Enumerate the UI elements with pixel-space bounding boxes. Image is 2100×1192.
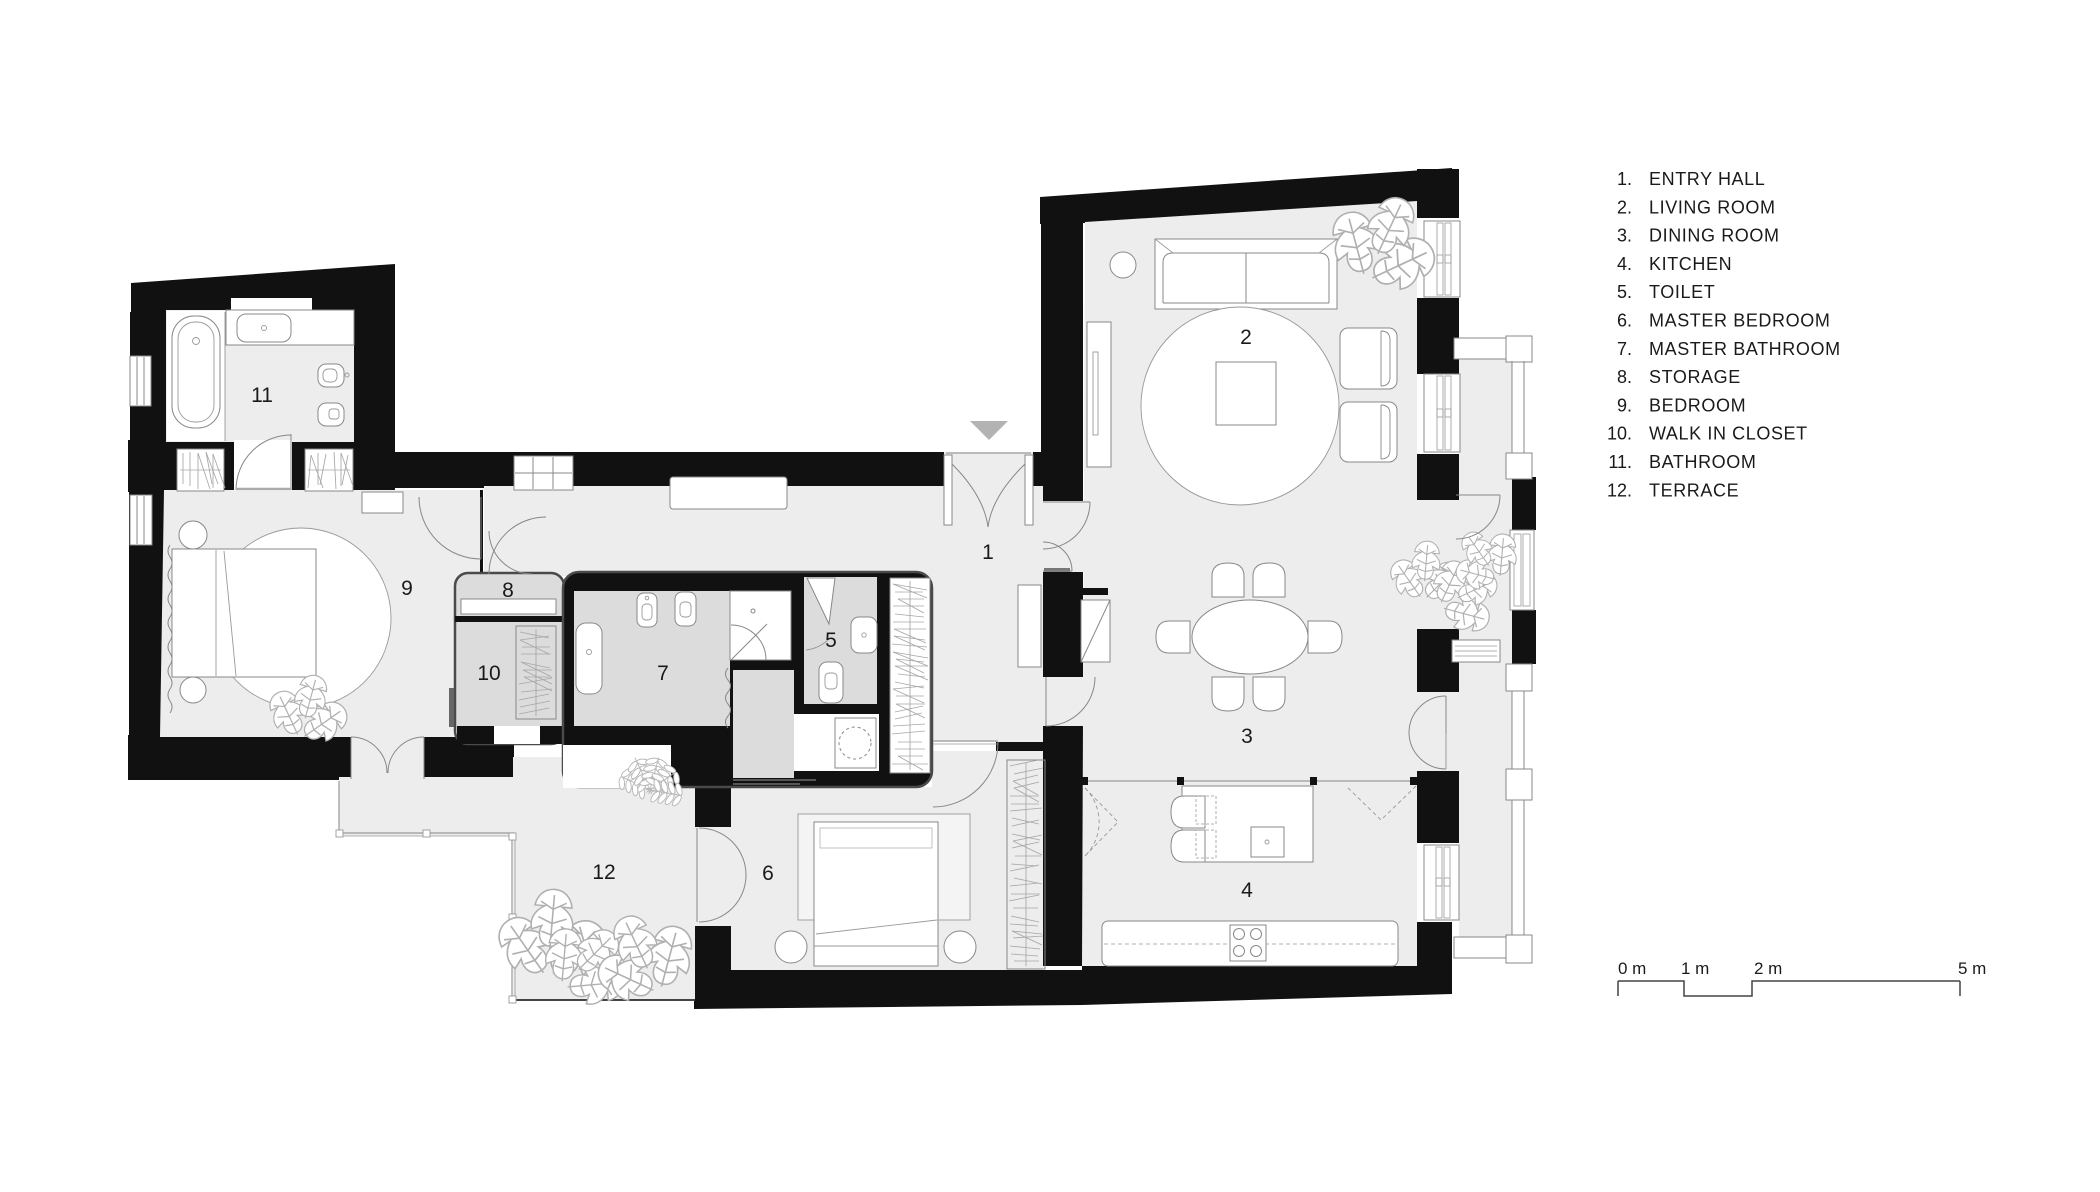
svg-text:11: 11 [251, 384, 273, 407]
svg-text:12: 12 [592, 861, 615, 884]
svg-text:6.: 6. [1617, 311, 1632, 331]
svg-text:2.: 2. [1617, 197, 1632, 217]
svg-text:2: 2 [1240, 326, 1252, 349]
svg-text:LIVING ROOM: LIVING ROOM [1649, 197, 1776, 217]
svg-text:BATHROOM: BATHROOM [1649, 452, 1756, 472]
svg-text:8: 8 [502, 579, 514, 602]
svg-text:3: 3 [1241, 725, 1253, 748]
svg-text:KITCHEN: KITCHEN [1649, 254, 1732, 274]
svg-text:5.: 5. [1617, 282, 1632, 302]
svg-text:0 m: 0 m [1618, 959, 1646, 978]
svg-text:1: 1 [982, 541, 994, 564]
svg-text:TERRACE: TERRACE [1649, 480, 1739, 500]
svg-text:STORAGE: STORAGE [1649, 367, 1741, 387]
svg-text:BEDROOM: BEDROOM [1649, 395, 1746, 415]
svg-text:12.: 12. [1607, 480, 1632, 500]
svg-text:6: 6 [762, 862, 774, 885]
svg-text:2 m: 2 m [1754, 959, 1782, 978]
svg-text:WALK IN CLOSET: WALK IN CLOSET [1649, 424, 1808, 444]
svg-text:9: 9 [401, 577, 413, 600]
svg-text:5 m: 5 m [1958, 959, 1986, 978]
svg-text:1 m: 1 m [1681, 959, 1709, 978]
svg-text:4: 4 [1241, 879, 1253, 902]
svg-text:1.: 1. [1617, 169, 1632, 189]
svg-text:MASTER BATHROOM: MASTER BATHROOM [1649, 339, 1841, 359]
svg-text:5: 5 [825, 629, 837, 652]
svg-text:ENTRY HALL: ENTRY HALL [1649, 169, 1765, 189]
svg-text:4.: 4. [1617, 254, 1632, 274]
svg-text:10: 10 [477, 662, 500, 685]
svg-text:7: 7 [657, 662, 669, 685]
svg-text:9.: 9. [1617, 395, 1632, 415]
svg-text:3.: 3. [1617, 226, 1632, 246]
svg-text:TOILET: TOILET [1649, 282, 1715, 302]
svg-text:11.: 11. [1608, 452, 1632, 472]
svg-text:10.: 10. [1607, 424, 1632, 444]
svg-text:MASTER BEDROOM: MASTER BEDROOM [1649, 311, 1830, 331]
svg-text:8.: 8. [1617, 367, 1632, 387]
svg-text:DINING ROOM: DINING ROOM [1649, 226, 1780, 246]
svg-text:7.: 7. [1617, 339, 1632, 359]
